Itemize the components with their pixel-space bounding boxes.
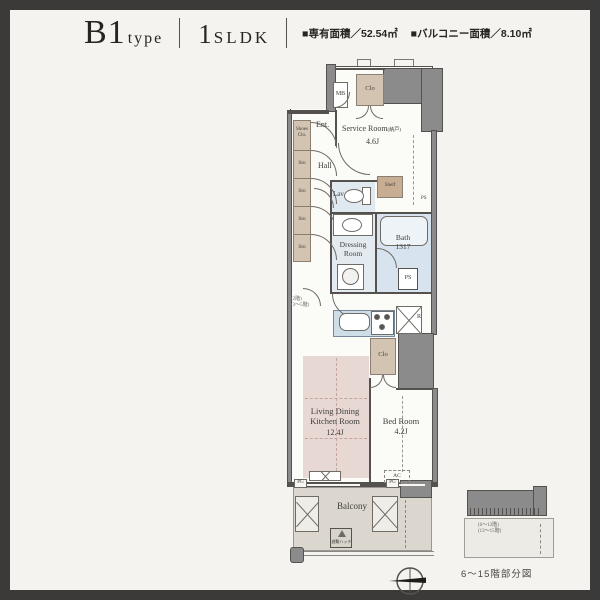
compass-icon: [386, 562, 434, 600]
dressing-room-label: Dressing Room: [330, 240, 376, 258]
window: [305, 484, 360, 486]
exclusive-area-label: ■専有面積／52.54㎡: [302, 26, 398, 41]
storage-divider: [293, 206, 311, 207]
ldk-label: Living Dining Kitchen Room: [300, 406, 370, 426]
bath-label: Bath 1317: [380, 233, 426, 251]
storage-label: Sto: [293, 244, 311, 250]
wall: [431, 130, 437, 335]
mid-closet-label: Clo: [370, 351, 396, 358]
stove-burner: [384, 314, 390, 320]
dimension-tick: [357, 59, 371, 66]
floor-note-line2: (3〜5階): [291, 303, 309, 308]
dimension-tick: [394, 59, 414, 66]
service-room-name: Service Room: [342, 124, 388, 133]
pipe-space-label: PS: [421, 196, 427, 201]
inset-floor-notes: (6〜12階) (13〜15階): [478, 523, 501, 535]
type-name: B1: [84, 14, 126, 52]
floor-note-line1: (2階): [291, 297, 302, 302]
balcony-panel: [295, 496, 319, 532]
pg-label: PG: [294, 480, 307, 485]
wall: [432, 388, 438, 486]
service-room-note: (納戸): [388, 128, 401, 133]
storage-label: Sto: [293, 216, 311, 222]
washbasin-bowl: [342, 218, 362, 232]
washing-machine-drum: [342, 268, 359, 285]
stove-burner: [379, 324, 385, 330]
storage-label: Sto: [293, 188, 311, 194]
service-room-label: Service Room(納戸): [342, 124, 401, 133]
floor-note: (2階) (3〜5階): [291, 297, 309, 309]
ldk-line1: Living Dining: [311, 406, 359, 416]
bath-name: Bath: [396, 233, 410, 242]
dimension-dashed: [405, 500, 406, 548]
shelf-label: Shelf: [377, 183, 403, 188]
closet-rail-dashed: [413, 135, 414, 205]
balcony-area-label: ■バルコニー面積／8.10㎡: [411, 26, 532, 41]
entry-notch: [285, 63, 329, 109]
ldk-size: 12.4J: [300, 428, 370, 437]
inset-hatching: [470, 508, 540, 515]
pg-label: PG: [386, 480, 399, 485]
window-counter: [309, 471, 341, 481]
window: [397, 484, 425, 486]
area-figures: ■専有面積／52.54㎡ ■バルコニー面積／8.10㎡: [302, 26, 532, 41]
entrance-label: Ent.: [316, 120, 329, 129]
lavatory-label: Lav: [333, 190, 344, 198]
shoes-closet-label: Shoes Clo.: [293, 127, 311, 139]
dressing-line2: Room: [344, 249, 362, 258]
drain-box: [290, 547, 304, 563]
entry-closet-label: Clo: [356, 85, 384, 92]
wall: [335, 68, 385, 70]
bedroom-label: Bed Room: [370, 416, 432, 426]
air-conditioner-label: AC: [384, 473, 410, 479]
shoes-closet-line2: Clo.: [298, 133, 306, 138]
toilet-bowl: [344, 189, 364, 203]
storage-label: Sto: [293, 160, 311, 166]
inset-dashed: [540, 524, 541, 554]
inset-note-line1: (6〜12階): [478, 523, 499, 528]
dressing-line1: Dressing: [340, 240, 367, 249]
header-divider: [179, 18, 180, 48]
layout-letters: SLDK: [214, 28, 270, 48]
stove-burner: [374, 314, 380, 320]
refrigerator-space: [396, 306, 422, 334]
balcony-edge: [291, 555, 434, 556]
header-divider: [286, 18, 287, 48]
evacuation-hatch-label: 避難ハッチ: [331, 539, 350, 545]
bedroom-size: 4.2J: [370, 427, 432, 436]
balcony-edge: [291, 551, 434, 552]
wall: [287, 110, 329, 114]
storage-divider: [293, 178, 311, 179]
floor-plan-sheet: B1 type 1 SLDK ■専有面積／52.54㎡ ■バルコニー面積／8.1…: [0, 0, 600, 600]
ldk-line2: Kitchen Room: [310, 416, 360, 426]
wall: [398, 333, 434, 390]
pipe-space-label: PS: [398, 275, 418, 281]
partition: [396, 388, 432, 390]
balcony-label: Balcony: [337, 501, 367, 511]
layout-number: 1: [198, 19, 212, 50]
shoes-closet-line1: Shoes: [296, 127, 308, 132]
refrigerator-label: R: [417, 314, 421, 320]
partition: [330, 180, 377, 182]
type-suffix: type: [128, 30, 164, 48]
meter-box-label: MB: [333, 91, 348, 97]
service-room-size: 4.6J: [366, 137, 379, 146]
bath-size: 1317: [396, 242, 411, 251]
inset-note-line2: (13〜15階): [478, 529, 501, 534]
kitchen-sink: [339, 313, 370, 331]
hall-label: Hall: [318, 161, 332, 170]
plan-header: B1 type 1 SLDK ■専有面積／52.54㎡ ■バルコニー面積／8.1…: [84, 14, 532, 52]
storage-divider: [293, 150, 311, 151]
inset-caption: 6〜15階部分図: [461, 566, 532, 580]
balcony-panel: [372, 496, 398, 532]
hatch-triangle: [338, 530, 346, 537]
storage-divider: [293, 234, 311, 235]
wall: [421, 68, 443, 132]
